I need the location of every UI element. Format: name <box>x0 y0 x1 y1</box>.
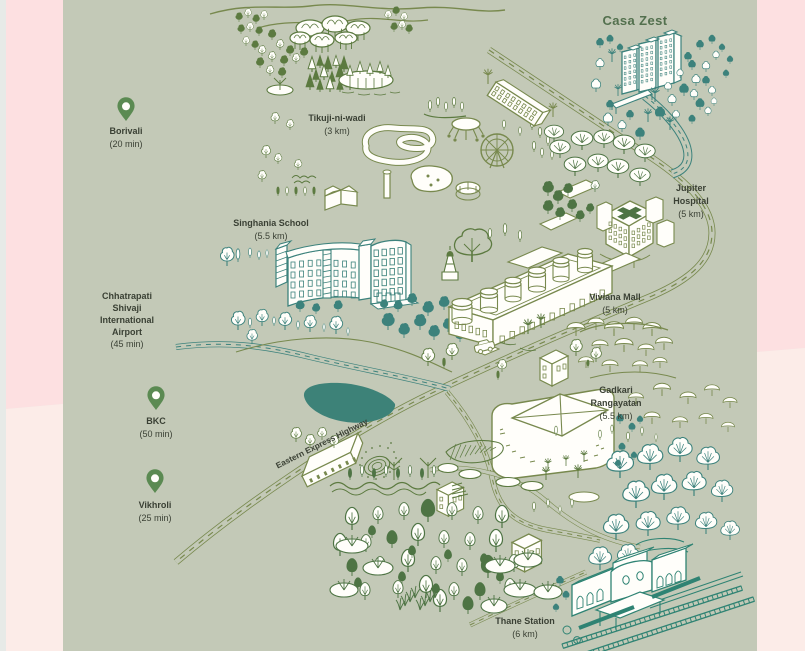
svg-text:Rangayatan: Rangayatan <box>590 398 641 408</box>
svg-text:(5 km): (5 km) <box>678 209 704 219</box>
svg-text:(50 min): (50 min) <box>139 429 172 439</box>
svg-text:Gadkari: Gadkari <box>599 385 633 395</box>
svg-text:Jupiter: Jupiter <box>676 183 707 193</box>
svg-text:Viviana Mall: Viviana Mall <box>589 292 640 302</box>
svg-text:(25 min): (25 min) <box>138 513 171 523</box>
svg-text:(5.5 km): (5.5 km) <box>254 231 287 241</box>
svg-text:Chhatrapati: Chhatrapati <box>102 291 152 301</box>
svg-text:Shivaji: Shivaji <box>112 303 141 313</box>
svg-text:Vikhroli: Vikhroli <box>139 500 172 510</box>
svg-text:Thane Station: Thane Station <box>495 616 555 626</box>
svg-text:Singhania School: Singhania School <box>233 218 309 228</box>
svg-text:(20 min): (20 min) <box>109 139 142 149</box>
svg-text:Borivali: Borivali <box>109 126 142 136</box>
svg-text:Airport: Airport <box>112 327 142 337</box>
svg-text:BKC: BKC <box>146 416 166 426</box>
svg-text:(5 km): (5 km) <box>602 305 628 315</box>
svg-text:(45 min): (45 min) <box>110 339 143 349</box>
svg-text:(5.5 km): (5.5 km) <box>599 411 632 421</box>
svg-text:International: International <box>100 315 154 325</box>
svg-text:(3 km): (3 km) <box>324 126 350 136</box>
svg-text:Hospital: Hospital <box>673 196 709 206</box>
svg-text:Tikuji-ni-wadi: Tikuji-ni-wadi <box>308 113 365 123</box>
svg-text:(6 km): (6 km) <box>512 629 538 639</box>
svg-text:Casa Zest: Casa Zest <box>602 13 667 28</box>
